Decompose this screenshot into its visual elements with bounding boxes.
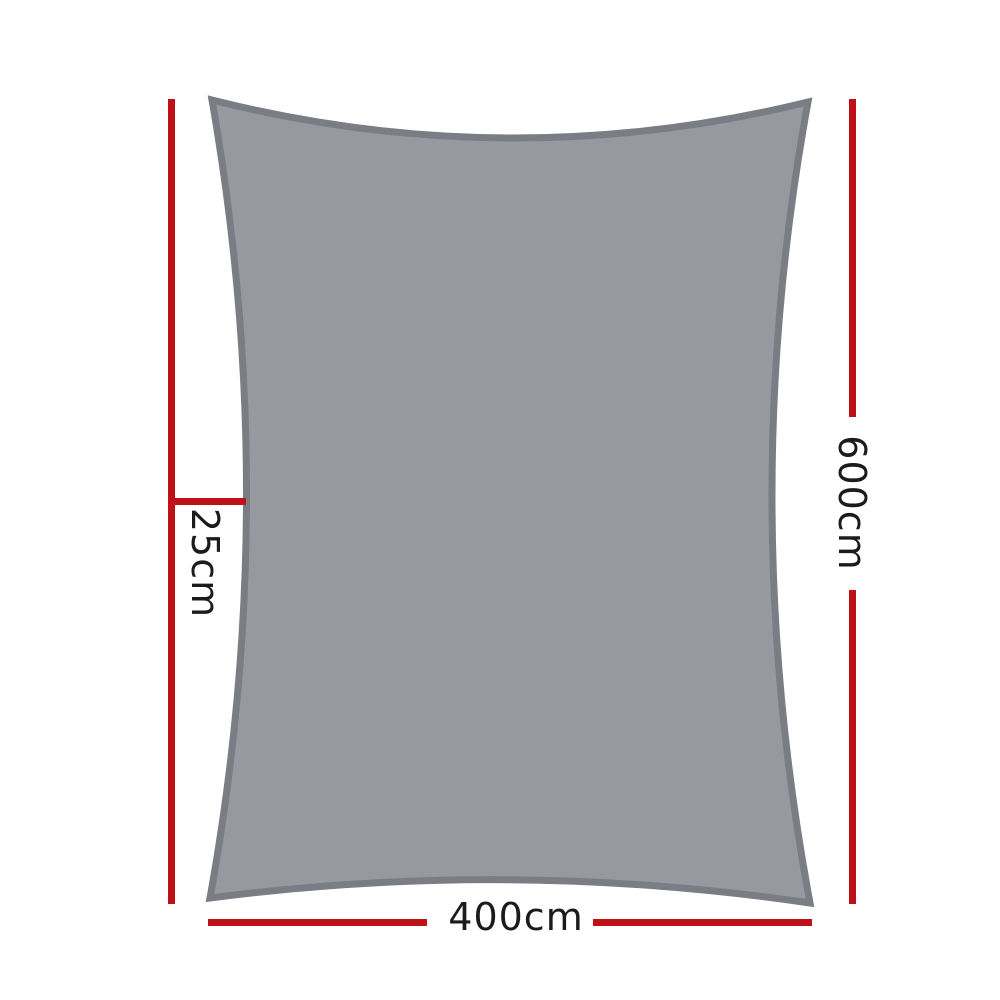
height-dimension-line-top-segment	[849, 99, 856, 417]
shade-sail-dimension-diagram: 600cm 25cm 400cm	[0, 0, 1000, 1000]
height-dimension-label: 600cm	[832, 423, 872, 583]
width-dimension-line-left-segment	[208, 919, 427, 926]
shade-sail-fabric	[210, 100, 810, 903]
edge-curve-depth-dimension-label: 25cm	[185, 503, 225, 623]
width-dimension-line-right-segment	[593, 919, 812, 926]
height-dimension-line-bottom-segment	[849, 590, 856, 904]
width-dimension-label: 400cm	[416, 897, 616, 937]
